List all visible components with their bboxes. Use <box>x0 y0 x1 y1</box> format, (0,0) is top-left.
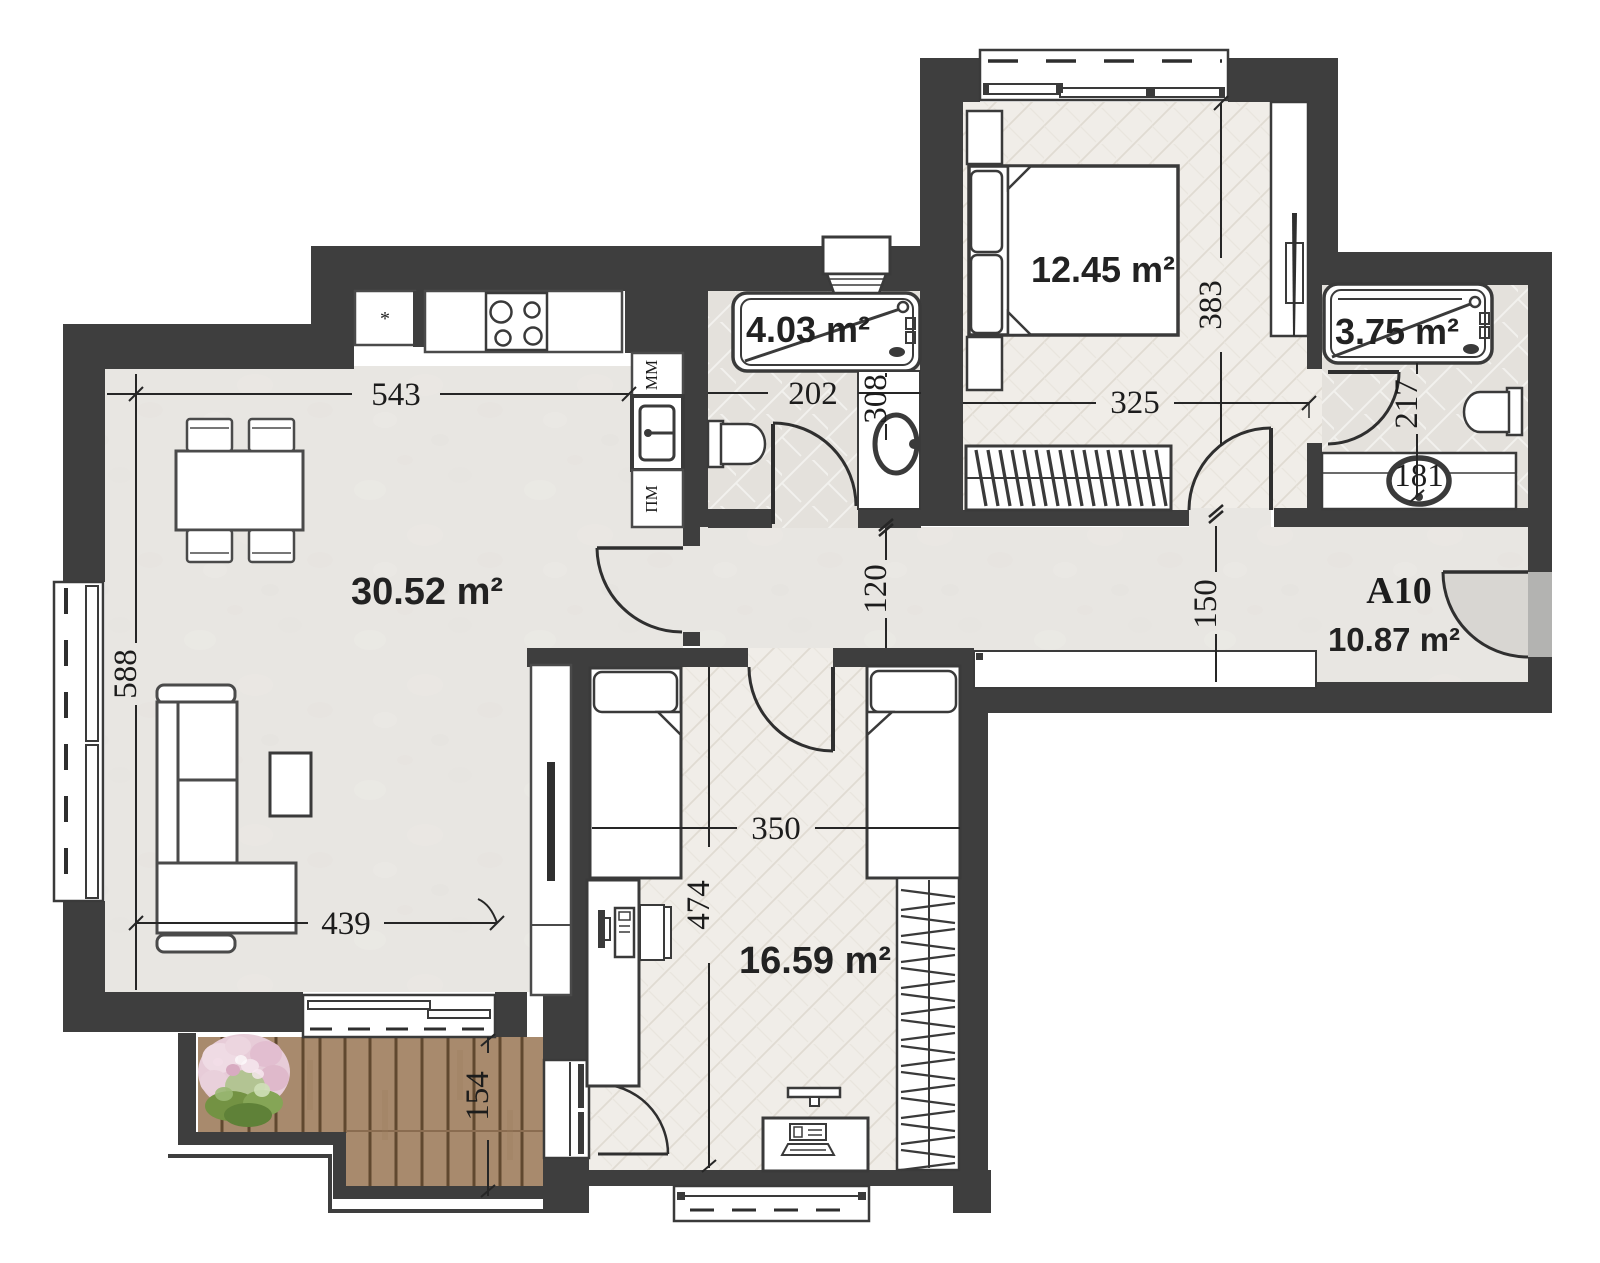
svg-text:217: 217 <box>1389 379 1425 429</box>
svg-text:474: 474 <box>681 880 717 930</box>
svg-text:588: 588 <box>108 649 144 699</box>
svg-text:181: 181 <box>1394 458 1444 494</box>
svg-text:383: 383 <box>1193 280 1229 330</box>
svg-text:A10: A10 <box>1366 570 1431 612</box>
svg-text:30.52 m²: 30.52 m² <box>351 571 503 613</box>
svg-text:120: 120 <box>858 564 894 614</box>
svg-text:325: 325 <box>1110 385 1160 421</box>
svg-text:16.59 m²: 16.59 m² <box>739 940 891 982</box>
svg-text:4.03 m²: 4.03 m² <box>746 309 870 350</box>
svg-text:543: 543 <box>371 377 421 413</box>
svg-text:3.75 m²: 3.75 m² <box>1335 311 1459 352</box>
svg-text:10.87 m²: 10.87 m² <box>1328 621 1460 658</box>
svg-text:154: 154 <box>460 1071 496 1121</box>
svg-text:308: 308 <box>858 374 894 424</box>
svg-text:12.45 m²: 12.45 m² <box>1031 249 1175 290</box>
svg-text:150: 150 <box>1188 579 1224 629</box>
svg-text:202: 202 <box>788 376 838 412</box>
svg-text:*: * <box>380 308 390 330</box>
svg-text:ММ: ММ <box>642 360 661 390</box>
svg-text:439: 439 <box>321 906 371 942</box>
svg-text:ПМ: ПМ <box>642 485 661 512</box>
svg-text:350: 350 <box>751 811 801 847</box>
